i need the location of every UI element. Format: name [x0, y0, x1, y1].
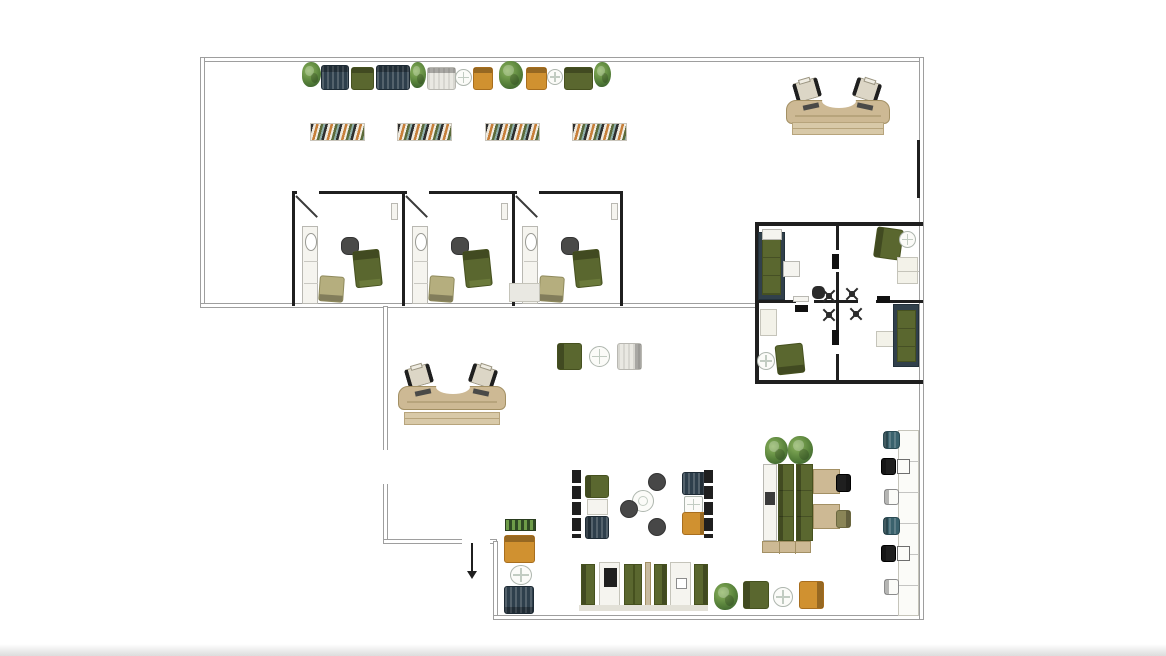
- armchair-green: [585, 475, 609, 498]
- chair-black: [881, 458, 896, 475]
- detail: [795, 542, 796, 554]
- armchair-orange: [682, 512, 706, 535]
- wall-shelf: [501, 203, 508, 220]
- desk-surface: [786, 100, 890, 124]
- reception-desk: [398, 366, 506, 426]
- base-line: [405, 418, 499, 419]
- seat-back: [884, 518, 888, 534]
- seat-back: [635, 344, 641, 369]
- seat-back: [846, 511, 850, 527]
- oval-detail: [415, 233, 427, 251]
- detail: [898, 271, 919, 272]
- armchair-green: [743, 581, 769, 609]
- banquette-green: [796, 464, 813, 541]
- booth-bench-green: [654, 564, 667, 605]
- banquette-green: [778, 464, 794, 541]
- base-line: [793, 128, 883, 129]
- detail: [469, 279, 491, 287]
- oval-detail: [525, 233, 537, 251]
- booth-table-white: [599, 562, 620, 607]
- armchair-orange: [504, 535, 535, 563]
- seat-back: [703, 565, 707, 604]
- office-wall-top: [292, 191, 623, 194]
- detail: [414, 283, 428, 284]
- office-wall-4: [620, 191, 623, 306]
- monitor: [803, 102, 820, 110]
- plant: [594, 62, 611, 87]
- plant: [302, 62, 321, 87]
- armchair-navy: [585, 516, 609, 539]
- round-table: [773, 587, 793, 607]
- rooms-wall-top: [755, 222, 923, 226]
- lounge-sofa-green: [775, 343, 806, 376]
- planter-plant: [788, 436, 813, 464]
- round-table: [510, 565, 532, 585]
- seat-back: [565, 68, 592, 73]
- foliage: [510, 74, 520, 85]
- planter-plant: [765, 437, 788, 464]
- task-chair: [821, 307, 837, 323]
- headrest: [863, 77, 877, 86]
- headrest: [410, 363, 423, 371]
- shelf-item-dark: [765, 492, 775, 505]
- guest-chair-khaki: [538, 275, 565, 303]
- office-wall-2: [402, 191, 405, 306]
- seat-back: [797, 465, 801, 540]
- detail: [676, 578, 687, 589]
- detail: [633, 565, 635, 606]
- detail: [604, 568, 617, 587]
- striped-rug: [572, 123, 627, 141]
- exam-cabinet: [302, 226, 318, 304]
- seat-back: [463, 250, 489, 261]
- armchair-green: [557, 343, 582, 370]
- detail: [304, 283, 318, 284]
- foliage: [311, 73, 319, 83]
- armchair-orange: [799, 581, 824, 609]
- side-unit: [783, 261, 800, 277]
- seat-back: [539, 294, 562, 302]
- seat-back: [586, 517, 591, 538]
- task-chair: [821, 288, 837, 304]
- wall-desk: [898, 430, 919, 616]
- seat-back: [882, 546, 886, 561]
- hub: [826, 312, 831, 317]
- privacy-screen: [572, 470, 581, 538]
- task-chair: [844, 286, 860, 302]
- armchair-white: [617, 343, 642, 370]
- plant: [499, 61, 523, 89]
- detail: [779, 542, 780, 554]
- seat-back: [817, 582, 823, 608]
- cross-v: [765, 355, 766, 367]
- seat-back: [573, 250, 599, 261]
- cross-v: [693, 499, 694, 510]
- side-table: [762, 229, 782, 240]
- armchair-navy: [504, 586, 534, 614]
- foliage: [775, 449, 784, 460]
- monitor: [415, 388, 432, 396]
- chair-teal: [883, 517, 900, 535]
- rooms-wall-mid-h: [755, 300, 923, 303]
- wall-mid-horizontal: [200, 303, 759, 308]
- round-table: [757, 352, 775, 370]
- seat-back: [353, 250, 379, 261]
- detail: [304, 261, 318, 262]
- armchair-orange: [526, 67, 547, 90]
- storage-white: [897, 257, 918, 284]
- seat-back: [352, 68, 373, 73]
- cross-v: [520, 568, 522, 582]
- hub: [849, 291, 854, 296]
- booth-platform: [579, 605, 708, 611]
- loveseat-green: [564, 67, 593, 90]
- seat-back: [582, 565, 586, 604]
- room-door-leaf-4: [832, 330, 839, 345]
- entry-arrow: [471, 543, 473, 571]
- striped-rug: [397, 123, 452, 141]
- storage-bench: [762, 541, 811, 553]
- seat-back: [322, 66, 348, 72]
- seat-back: [429, 294, 452, 302]
- round-table: [589, 346, 610, 367]
- striped-rug: [485, 123, 540, 141]
- office-door-gap-2: [407, 191, 429, 194]
- loveseat-white: [427, 67, 456, 90]
- foliage: [725, 595, 735, 606]
- cross-v: [907, 234, 908, 245]
- seat-back: [882, 459, 886, 474]
- seat-back: [885, 490, 889, 504]
- cross-v: [782, 590, 783, 604]
- seat-back: [505, 607, 533, 613]
- cross-v: [599, 349, 601, 363]
- office-door-swing-1: [295, 195, 318, 218]
- hub: [853, 311, 858, 316]
- reception-desk: [786, 80, 890, 136]
- desk-edge: [407, 401, 497, 403]
- booth-divider: [645, 562, 651, 608]
- office-door-swing-3: [515, 195, 538, 218]
- seat-back: [505, 536, 534, 542]
- privacy-screen: [704, 470, 713, 538]
- desk-stool: [897, 459, 910, 474]
- seat-back: [778, 365, 805, 375]
- chair-teal: [883, 431, 900, 449]
- monitor: [857, 102, 874, 110]
- pouf: [620, 500, 638, 518]
- oval-detail: [305, 233, 317, 251]
- detail: [414, 261, 428, 262]
- booth-bench-green: [624, 564, 642, 605]
- chair-black: [836, 474, 851, 492]
- detail: [524, 261, 538, 262]
- office-wall-1: [292, 191, 295, 306]
- armchair-green: [351, 67, 374, 90]
- office-door-gap-1: [297, 191, 319, 194]
- rooms-door-gap-4: [858, 300, 876, 303]
- armchair-orange: [473, 67, 493, 90]
- detail: [359, 279, 381, 287]
- entry-door-gap: [462, 539, 490, 544]
- desk-edge: [795, 115, 881, 117]
- loveseat-navy: [321, 65, 349, 90]
- loveseat-navy: [376, 65, 410, 90]
- chair-white: [884, 489, 899, 505]
- round-table: [547, 69, 563, 85]
- room-door-leaf-3: [795, 305, 808, 312]
- foliage: [602, 73, 609, 83]
- seat-back: [319, 294, 342, 302]
- seat-back: [846, 475, 850, 491]
- lounge-chair-green: [572, 249, 603, 289]
- pouf: [648, 518, 666, 536]
- desk-surface: [398, 386, 506, 410]
- room-door-leaf-1: [832, 254, 839, 269]
- wall-right-glass: [917, 140, 920, 198]
- desk-stool: [897, 546, 910, 561]
- desk-item: [793, 296, 809, 302]
- booth-bench-green: [694, 564, 708, 605]
- seat-back: [527, 68, 546, 73]
- seat-back: [779, 465, 783, 540]
- round-table: [455, 69, 472, 86]
- rooms-wall-bottom: [755, 380, 923, 384]
- entry-arrow-head: [467, 571, 477, 579]
- wall-entry-side: [493, 541, 498, 620]
- plant: [410, 62, 426, 88]
- headrest: [479, 363, 493, 372]
- seat-back: [874, 227, 884, 257]
- seat-back: [474, 68, 492, 73]
- office-door-gap-3: [517, 191, 539, 194]
- seat-back: [744, 582, 750, 608]
- nap-sofa-green: [897, 310, 916, 362]
- storage-white: [760, 309, 777, 336]
- guest-chair-khaki: [428, 275, 455, 303]
- guest-chair-khaki: [318, 275, 345, 303]
- chair-olive: [836, 510, 851, 528]
- desk-notch: [436, 380, 470, 394]
- side-table: [587, 499, 608, 515]
- cross-v: [463, 72, 464, 83]
- detail: [579, 279, 601, 287]
- lounge-chair-green: [352, 249, 383, 289]
- desk-base: [792, 122, 884, 135]
- round-table: [899, 231, 916, 248]
- booth-bench-green: [581, 564, 595, 605]
- desk-notch: [822, 94, 856, 108]
- pouf: [648, 473, 666, 491]
- seat-back: [428, 68, 455, 73]
- wall-shelf: [391, 203, 398, 220]
- hub: [826, 293, 831, 298]
- cross-v: [554, 72, 555, 83]
- office-cabinet: [509, 283, 540, 302]
- floorplan-canvas: [0, 0, 1166, 656]
- task-chair: [848, 306, 864, 322]
- seat-back: [884, 432, 888, 448]
- striped-rug: [310, 123, 365, 141]
- seat-back: [662, 565, 666, 604]
- wall-left-upper: [200, 57, 205, 308]
- booth-table-white: [670, 562, 691, 607]
- wall-bottom: [493, 615, 924, 620]
- seat-back: [586, 476, 591, 497]
- bottom-edge-shadow: [0, 644, 1166, 656]
- armchair-navy: [682, 472, 706, 495]
- office-door-swing-2: [405, 195, 428, 218]
- plant: [714, 583, 738, 610]
- seat-back: [558, 344, 564, 369]
- exam-cabinet: [412, 226, 428, 304]
- foliage: [417, 74, 423, 84]
- monitor: [473, 388, 490, 396]
- chair-white: [884, 579, 899, 595]
- lounge-chair-green: [462, 249, 493, 289]
- desk-base: [404, 412, 500, 425]
- room-door-leaf-2: [877, 296, 890, 303]
- wall-shelf: [611, 203, 618, 220]
- nap-sofa-green: [762, 239, 781, 295]
- planter-trough: [505, 519, 536, 531]
- window-gap-lower-left: [383, 450, 388, 484]
- table-ring: [638, 496, 648, 506]
- seat-back: [377, 66, 409, 72]
- wall-lower-left: [383, 306, 388, 543]
- chair-black: [881, 545, 896, 562]
- foliage: [799, 449, 809, 460]
- headrest: [798, 77, 811, 85]
- seat-back: [885, 580, 889, 594]
- side-table: [684, 496, 703, 513]
